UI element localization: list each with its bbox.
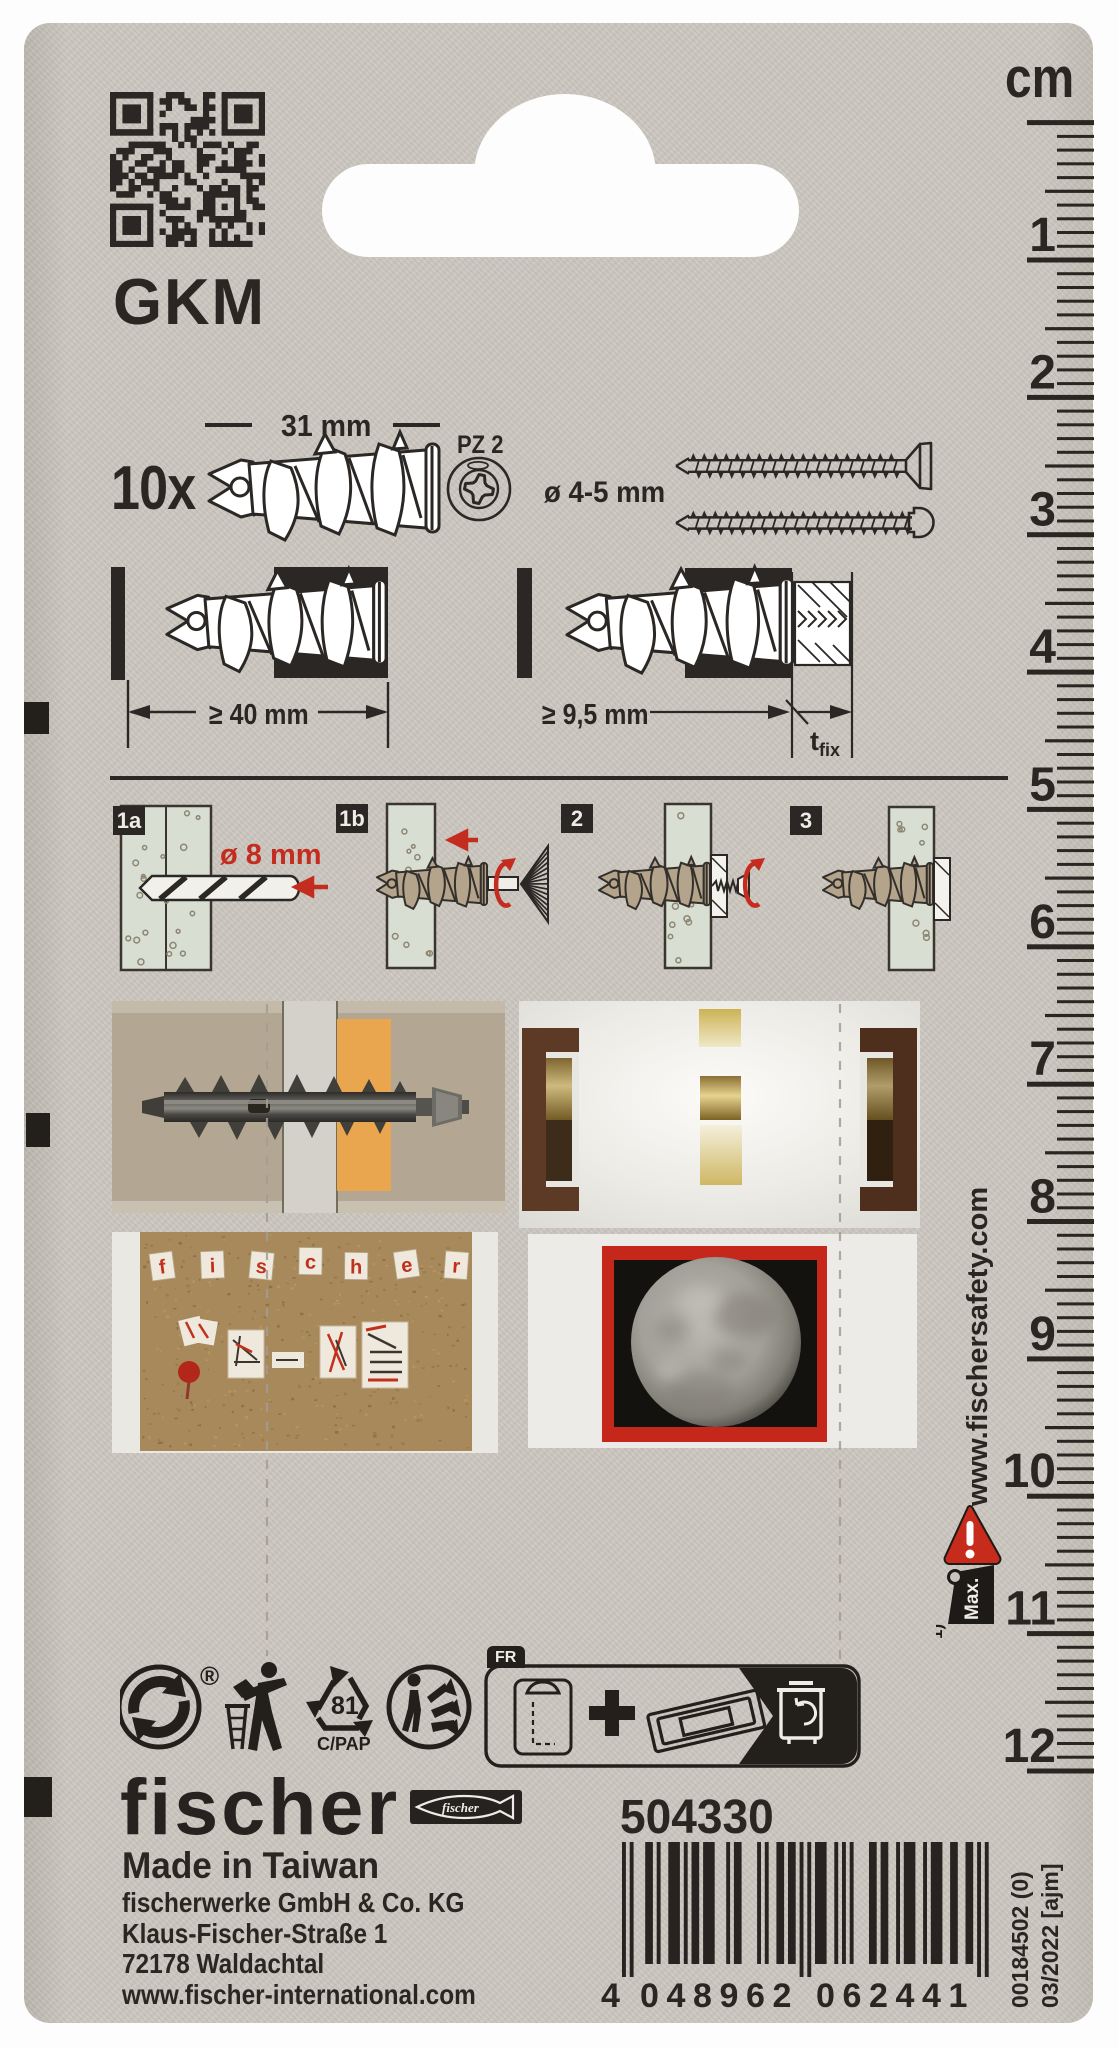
svg-text:5: 5: [1029, 758, 1056, 811]
svg-text:c: c: [305, 1252, 316, 1274]
svg-text:i: i: [209, 1255, 215, 1277]
svg-text:9: 9: [1029, 1308, 1056, 1361]
svg-text:2: 2: [1029, 346, 1056, 399]
svg-text:81: 81: [331, 1692, 359, 1720]
svg-text:1: 1: [1029, 209, 1056, 262]
svg-text:12: 12: [1003, 1720, 1056, 1773]
svg-text:4: 4: [1029, 621, 1056, 674]
svg-text:fischer: fischer: [442, 1800, 480, 1815]
svg-text:8: 8: [1029, 1171, 1056, 1224]
svg-text:®: ®: [200, 1663, 219, 1691]
svg-text:Max.: Max.: [962, 1578, 983, 1620]
svg-text:10: 10: [1003, 1445, 1056, 1498]
svg-text:3: 3: [1029, 484, 1056, 537]
svg-text:FR: FR: [495, 1649, 517, 1666]
svg-text:C/PAP: C/PAP: [317, 1734, 371, 1754]
svg-text:h: h: [350, 1256, 362, 1278]
svg-text:11: 11: [1005, 1583, 1056, 1636]
svg-text:6: 6: [1029, 896, 1056, 949]
svg-text:1): 1): [936, 1624, 946, 1639]
svg-text:7: 7: [1029, 1033, 1056, 1086]
